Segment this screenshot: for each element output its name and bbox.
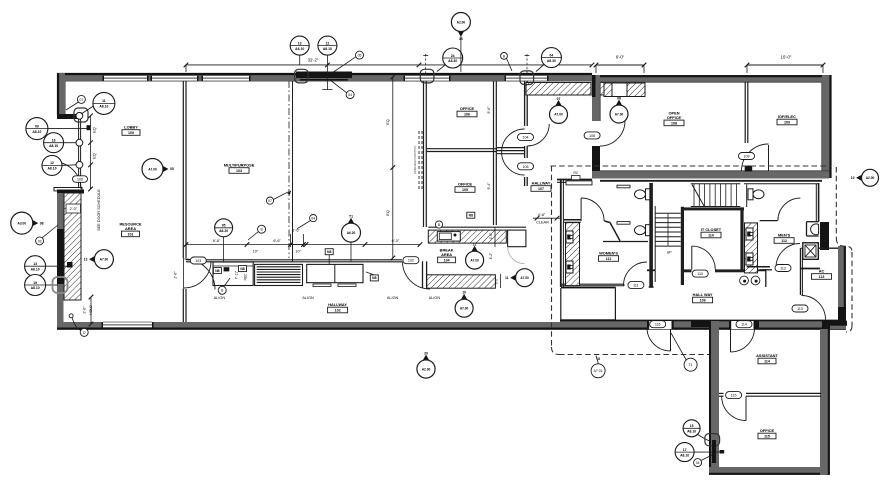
svg-text:EQ: EQ: [386, 210, 390, 216]
svg-text:2'-6": 2'-6": [83, 306, 87, 314]
svg-text:A8.30: A8.30: [448, 59, 457, 63]
svg-text:REC: REC: [244, 273, 248, 280]
svg-text:A8.10: A8.10: [31, 267, 40, 271]
svg-text:ALIGN: ALIGN: [214, 296, 226, 300]
svg-text:A2.00: A2.00: [457, 20, 466, 24]
svg-text:N8: N8: [372, 276, 376, 280]
svg-text:11: 11: [102, 99, 106, 103]
svg-text:111: 111: [606, 257, 612, 261]
svg-text:05: 05: [358, 54, 362, 58]
svg-text:115: 115: [764, 435, 770, 439]
svg-text:OFFICE: OFFICE: [667, 115, 682, 120]
svg-text:12: 12: [473, 243, 477, 247]
svg-text:05: 05: [222, 224, 226, 228]
svg-text:A8.10: A8.10: [99, 105, 108, 109]
svg-text:17: 17: [683, 448, 687, 452]
svg-text:04: 04: [311, 217, 315, 221]
svg-text:IDF/ELEC: IDF/ELEC: [778, 114, 796, 119]
svg-text:13: 13: [298, 41, 302, 45]
svg-text:07: 07: [268, 199, 272, 203]
svg-text:T1: T1: [689, 363, 693, 367]
svg-text:4'-2": 4'-2": [489, 252, 493, 260]
svg-text:113: 113: [819, 275, 825, 279]
svg-text:24: 24: [451, 54, 455, 58]
svg-text:A7.00: A7.00: [100, 258, 109, 262]
svg-text:09: 09: [35, 124, 39, 128]
svg-text:19: 19: [33, 281, 37, 285]
svg-text:109: 109: [744, 155, 750, 159]
svg-text:110: 110: [697, 272, 703, 276]
svg-text:A2.00: A2.00: [422, 367, 431, 371]
svg-text:OFFICE: OFFICE: [458, 182, 473, 187]
svg-text:IT CLOSET: IT CLOSET: [701, 227, 722, 232]
svg-text:10": 10": [253, 250, 259, 254]
svg-text:EQ: EQ: [386, 119, 390, 125]
svg-text:N8: N8: [469, 214, 473, 218]
svg-text:108: 108: [671, 122, 677, 126]
svg-text:A6.10: A6.10: [323, 47, 332, 51]
svg-text:106: 106: [464, 113, 470, 117]
svg-text:RC: RC: [573, 171, 578, 175]
svg-text:A8.10: A8.10: [680, 453, 689, 457]
svg-text:2'-6": 2'-6": [174, 271, 178, 279]
svg-text:A8.10: A8.10: [47, 167, 56, 171]
svg-text:12: 12: [326, 41, 330, 45]
svg-text:102: 102: [335, 309, 341, 313]
svg-text:3'-0": 3'-0": [495, 277, 499, 285]
svg-text:114: 114: [741, 323, 747, 327]
svg-text:115: 115: [731, 394, 737, 398]
svg-text:A6.10: A6.10: [295, 47, 304, 51]
svg-text:112: 112: [781, 239, 787, 243]
svg-text:HALLWAY: HALLWAY: [532, 181, 551, 186]
svg-text:114: 114: [764, 360, 770, 364]
svg-text:A8.30: A8.30: [547, 59, 556, 63]
svg-text:7'-11": 7'-11": [235, 270, 239, 279]
svg-text:SEE DOOR SCHEDULE: SEE DOOR SCHEDULE: [97, 189, 101, 231]
svg-text:05: 05: [170, 167, 174, 171]
svg-text:10": 10": [295, 250, 301, 254]
svg-text:ASSISTANT: ASSISTANT: [756, 353, 778, 358]
svg-text:104: 104: [523, 136, 529, 140]
svg-text:A7.00: A7.00: [148, 167, 157, 171]
svg-text:103: 103: [195, 259, 201, 263]
svg-text:111: 111: [633, 284, 638, 288]
svg-text:08: 08: [617, 97, 621, 101]
svg-text:A3.00: A3.00: [18, 221, 27, 225]
svg-text:AREA: AREA: [441, 252, 452, 257]
svg-text:1'-6": 1'-6": [292, 229, 300, 233]
svg-text:9'-6": 9'-6": [487, 106, 491, 114]
svg-text:AREA: AREA: [125, 226, 136, 231]
svg-text:A2.00: A2.00: [866, 176, 875, 180]
svg-text:N8: N8: [327, 250, 331, 254]
svg-text:32'-2": 32'-2": [308, 58, 319, 63]
svg-text:CLEAR: CLEAR: [536, 221, 549, 225]
svg-text:13: 13: [84, 257, 88, 261]
svg-text:08: 08: [40, 221, 44, 225]
svg-text:A6.20: A6.20: [219, 229, 228, 233]
svg-text:A7.00: A7.00: [554, 113, 563, 117]
svg-text:A7.00: A7.00: [615, 112, 624, 116]
svg-text:6'-6": 6'-6": [273, 239, 281, 243]
svg-text:07: 07: [80, 98, 84, 102]
svg-text:2'-0": 2'-0": [70, 207, 78, 211]
svg-text:HALL WAY: HALL WAY: [693, 292, 713, 297]
svg-text:100: 100: [77, 178, 83, 182]
svg-text:OFFICE: OFFICE: [460, 106, 475, 111]
svg-text:107: 107: [538, 187, 544, 191]
svg-text:104: 104: [444, 259, 450, 263]
svg-text:102: 102: [408, 259, 414, 263]
svg-text:T1: T1: [349, 215, 353, 219]
svg-text:10: 10: [851, 176, 855, 180]
svg-text:AC: AC: [819, 269, 825, 274]
svg-text:16: 16: [52, 139, 56, 143]
svg-text:A7.01: A7.01: [594, 369, 603, 373]
svg-text:A8.10: A8.10: [32, 130, 41, 134]
svg-text:N8: N8: [215, 269, 219, 273]
svg-text:03: 03: [38, 239, 42, 243]
svg-text:108: 108: [589, 134, 595, 138]
svg-text:A8.10: A8.10: [687, 430, 696, 434]
svg-text:20: 20: [424, 351, 428, 355]
svg-text:A7.00: A7.00: [460, 307, 469, 311]
svg-text:116: 116: [655, 323, 661, 327]
svg-text:109: 109: [784, 121, 790, 125]
svg-text:109: 109: [700, 299, 706, 303]
svg-text:UP: UP: [667, 251, 673, 255]
svg-text:6'-0": 6'-0": [616, 55, 625, 60]
svg-text:105: 105: [462, 188, 468, 192]
svg-text:N8: N8: [240, 267, 244, 271]
svg-text:105: 105: [523, 165, 529, 169]
svg-text:EQ: EQ: [93, 127, 97, 133]
svg-text:04: 04: [550, 53, 554, 57]
svg-text:ALIGN: ALIGN: [429, 296, 441, 300]
svg-text:2'-6": 2'-6": [489, 232, 493, 240]
svg-text:WOMEN'S: WOMEN'S: [599, 251, 618, 256]
svg-text:112: 112: [780, 267, 786, 271]
svg-text:OFFICE: OFFICE: [760, 428, 775, 433]
svg-text:12: 12: [50, 161, 54, 165]
svg-text:A8.10: A8.10: [31, 286, 40, 290]
svg-text:LOBBY: LOBBY: [124, 125, 138, 130]
svg-text:10: 10: [462, 291, 466, 295]
svg-text:ALIGN: ALIGN: [387, 296, 399, 300]
svg-text:A6.20: A6.20: [347, 231, 356, 235]
svg-text:07: 07: [557, 97, 561, 101]
svg-text:10'-0": 10'-0": [781, 55, 792, 60]
svg-text:13: 13: [33, 262, 37, 266]
svg-text:100: 100: [128, 131, 134, 135]
svg-text:6'-6": 6'-6": [213, 239, 221, 243]
svg-text:MULTIPURPOSE: MULTIPURPOSE: [224, 163, 255, 168]
svg-text:101: 101: [128, 233, 134, 237]
svg-text:103: 103: [236, 169, 242, 173]
svg-text:110: 110: [708, 234, 714, 238]
svg-text:15: 15: [690, 424, 694, 428]
svg-text:ALIGN: ALIGN: [302, 296, 314, 300]
svg-text:HALLWAY: HALLWAY: [328, 302, 347, 307]
svg-text:A7.00: A7.00: [520, 276, 529, 280]
svg-text:11: 11: [505, 276, 509, 280]
svg-text:A8.10: A8.10: [49, 144, 58, 148]
svg-text:9'-4": 9'-4": [487, 182, 491, 190]
svg-text:OPERABLE PARTITION: OPERABLE PARTITION: [413, 146, 417, 174]
svg-text:04: 04: [696, 461, 700, 465]
svg-text:113: 113: [797, 307, 803, 311]
svg-text:MEN'S: MEN'S: [778, 233, 791, 238]
svg-text:EQ: EQ: [93, 153, 97, 159]
svg-text:04: 04: [348, 93, 352, 97]
svg-text:A7.00: A7.00: [470, 258, 479, 262]
